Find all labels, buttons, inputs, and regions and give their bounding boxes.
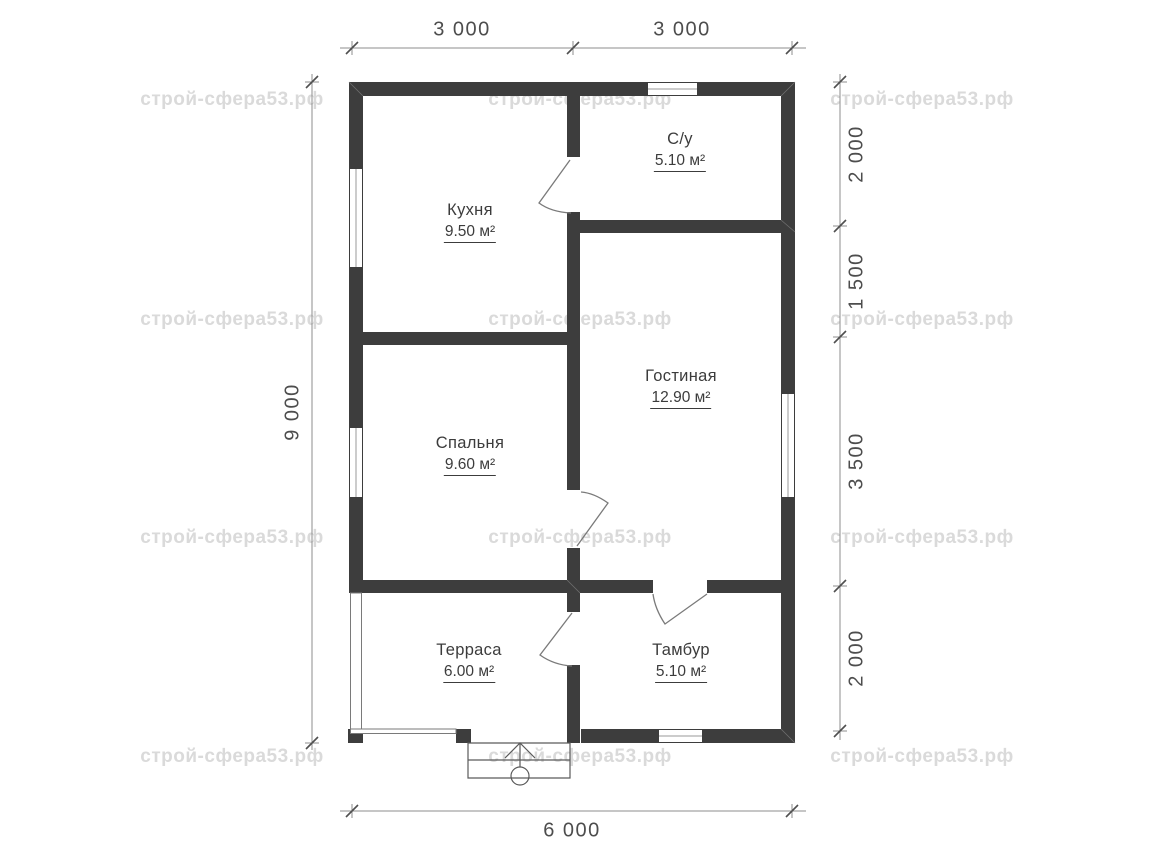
doors: [539, 160, 707, 666]
room-area: 9.60 м²: [444, 456, 496, 476]
room-label-bedroom: Спальня 9.60 м²: [436, 434, 504, 476]
dim-label-right-3: 3 500: [846, 432, 869, 490]
room-label-bathroom: С/у 5.10 м²: [654, 130, 706, 172]
door-bathroom: [539, 160, 571, 213]
dim-label-left: 9 000: [282, 383, 305, 441]
room-label-terrace: Терраса 6.00 м²: [436, 641, 501, 683]
room-label-kitchen: Кухня 9.50 м²: [444, 201, 496, 243]
dim-extension-stubs: [305, 41, 847, 818]
dimension-lines: [305, 41, 847, 818]
porch-steps: [468, 743, 570, 778]
room-name: Терраса: [436, 641, 501, 660]
dim-label-top-2: 3 000: [653, 19, 711, 42]
miter-lines: [349, 82, 795, 743]
room-area: 9.50 м²: [444, 223, 496, 243]
room-name: Гостиная: [645, 367, 717, 386]
dimension-ticks: [306, 42, 846, 817]
room-name: Кухня: [447, 201, 493, 220]
room-area: 5.10 м²: [654, 152, 706, 172]
dim-label-right-1: 2 000: [846, 125, 869, 183]
terrace-edge-bottom: [351, 729, 457, 734]
room-area: 5.10 м²: [655, 663, 707, 683]
entrance-marker: [511, 767, 529, 785]
room-name: Тамбур: [652, 641, 710, 660]
terrace-edge-left: [351, 593, 362, 730]
floor-plan-canvas: строй-сфера53.рфстрой-сфера53.рфстрой-сф…: [0, 0, 1155, 866]
room-area: 6.00 м²: [443, 663, 495, 683]
door-living: [577, 492, 608, 546]
tick-marks: [306, 42, 846, 817]
dim-label-top-1: 3 000: [433, 19, 491, 42]
room-label-living: Гостиная 12.90 м²: [645, 367, 717, 409]
dim-label-right-4: 2 000: [846, 629, 869, 687]
dim-label-bottom: 6 000: [543, 820, 601, 843]
door-vestibule: [653, 594, 707, 624]
plan-layer: Кухня 9.50 м² С/у 5.10 м² Гостиная 12.90…: [0, 0, 1155, 866]
room-area: 12.90 м²: [651, 389, 712, 409]
plan-drawing-svg: [0, 0, 1155, 866]
room-name: Спальня: [436, 434, 504, 453]
room-label-vestibule: Тамбур 5.10 м²: [652, 641, 710, 683]
entrance-arrow: [505, 743, 535, 767]
room-name: С/у: [667, 130, 693, 149]
dim-label-right-2: 1 500: [846, 252, 869, 310]
corner-miters: [349, 82, 795, 743]
porch: [468, 743, 570, 785]
door-terrace: [540, 613, 572, 666]
